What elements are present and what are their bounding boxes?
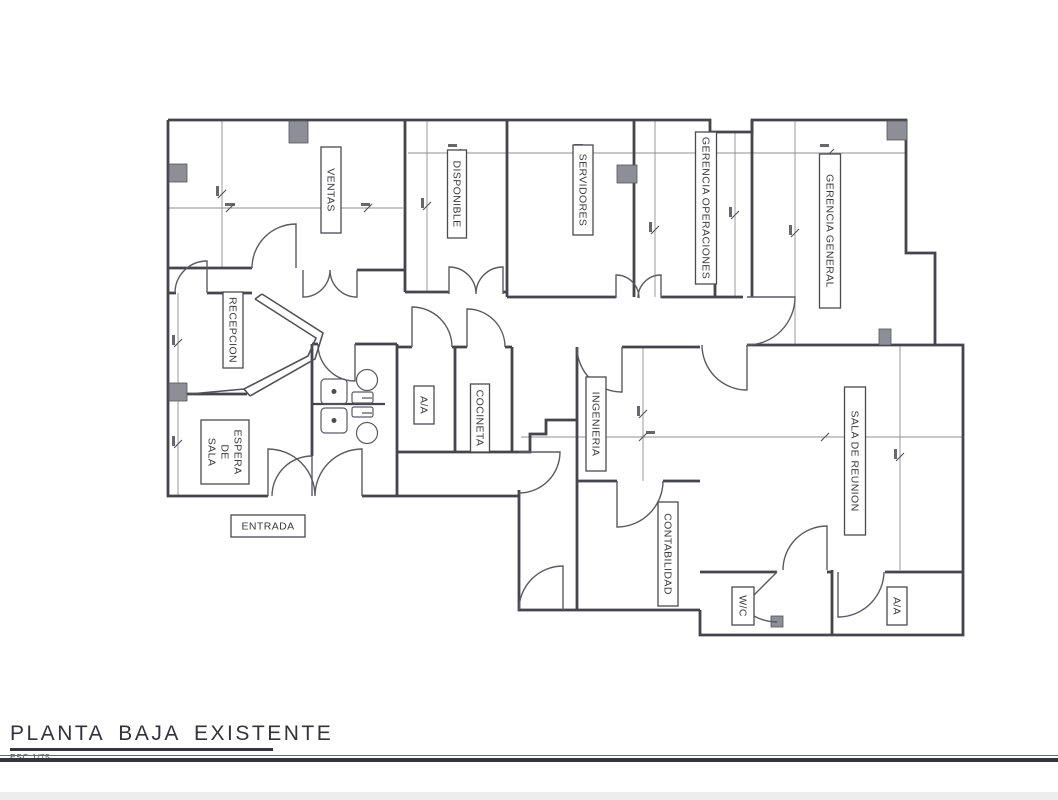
reception-desk — [190, 294, 323, 396]
room-label-recepcion: RECEPCION — [223, 292, 243, 368]
room-label-text: COCINETA — [474, 390, 486, 447]
door-swings — [175, 224, 884, 622]
room-label-text: A/A — [891, 597, 903, 615]
sink — [357, 370, 378, 391]
room-label-text: CONTABILIDAD — [662, 513, 674, 595]
column — [289, 121, 308, 143]
room-label-text: SERVIDORES — [577, 154, 589, 227]
room-label-servidores: SERVIDORES — [573, 145, 593, 235]
room-label-ventas: VENTAS — [321, 147, 341, 233]
plan-title: PLANTA BAJA EXISTENTE — [10, 722, 1050, 746]
floor-plan-drawing: VENTASDISPONIBLESERVIDORESGERENCIA OPERA… — [0, 0, 1058, 712]
room-label-wc: W/C — [732, 587, 754, 625]
room-label-text: A/A — [418, 396, 430, 414]
room-label-gerencia-operaciones: GERENCIA OPERACIONES — [696, 132, 717, 284]
column — [887, 121, 907, 140]
room-label-text: DISPONIBLE — [451, 160, 463, 227]
room-label-text: ENTRADA — [242, 521, 295, 533]
column — [169, 383, 187, 401]
title-underline — [10, 748, 273, 751]
walls — [168, 120, 963, 635]
room-label-text: VENTAS — [325, 168, 337, 212]
room-label-text: RECEPCION — [227, 297, 239, 363]
room-label-aa-sureste: A/A — [887, 587, 907, 625]
room-label-cocineta: COCINETA — [471, 384, 490, 452]
column — [879, 329, 891, 345]
room-label-contabilidad: CONTABILIDAD — [658, 502, 678, 606]
column — [617, 165, 637, 183]
room-label-sala-de-reunion: SALA DE REUNION — [845, 387, 866, 535]
room-label-text: SALA DE REUNION — [849, 410, 861, 511]
sink-pedestal — [352, 407, 373, 417]
footer-thin-rule — [0, 755, 1058, 756]
scan-edge-band — [0, 792, 1058, 800]
room-label-sala-de-espera: ESPERADESALA — [201, 420, 249, 484]
room-label-text: INGENIERIA — [590, 392, 602, 457]
room-labels: VENTASDISPONIBLESERVIDORESGERENCIA OPERA… — [201, 132, 907, 625]
columns — [169, 121, 907, 627]
footer-thick-rule — [0, 758, 1058, 762]
room-label-entrada: ENTRADA — [231, 515, 305, 537]
room-label-text: GERENCIA OPERACIONES — [700, 137, 712, 279]
room-label-gerencia-general: GERENCIA GENERAL — [820, 154, 841, 308]
floor-plan-page: VENTASDISPONIBLESERVIDORESGERENCIA OPERA… — [0, 0, 1058, 800]
room-label-text: GERENCIA GENERAL — [824, 174, 836, 288]
room-label-disponible: DISPONIBLE — [448, 150, 467, 238]
column — [169, 164, 187, 182]
sink — [357, 423, 378, 444]
room-label-aa-central: A/A — [414, 386, 434, 424]
room-label-text: W/C — [737, 595, 749, 617]
room-label-ingenieria: INGENIERIA — [586, 377, 606, 471]
